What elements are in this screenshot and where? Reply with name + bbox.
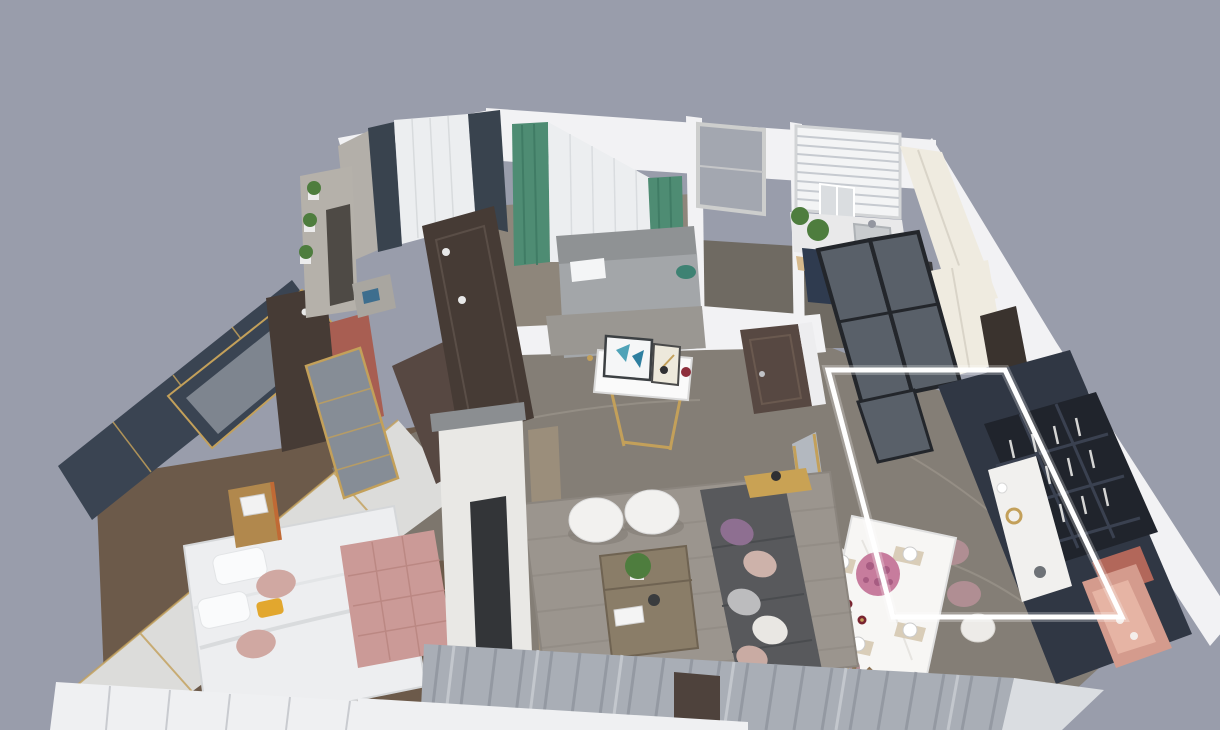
niche-item [1130, 632, 1138, 640]
bed2-pillow [570, 258, 606, 282]
plant [307, 181, 321, 195]
niche-white-vase [997, 483, 1007, 493]
wardrobe-knob [442, 248, 450, 256]
pouf-white-1 [569, 498, 623, 542]
sculpture-black [660, 366, 668, 374]
faucet [868, 220, 876, 228]
kitchen-plant-1 [791, 207, 809, 225]
coffee-table-book [614, 606, 644, 626]
kitchen-plant-2 [807, 219, 829, 241]
pouf-white-2 [625, 490, 679, 534]
table-sculpture [648, 594, 660, 606]
wardrobe-knob [458, 296, 466, 304]
nightstand-books [240, 494, 268, 516]
shelf-dark-panel [326, 204, 354, 306]
plant [303, 213, 317, 227]
green-drape-left [512, 122, 550, 266]
door-handle [759, 371, 765, 377]
niche-dark-vase [1034, 566, 1046, 578]
coffee-table-plant [625, 553, 651, 579]
bed2-teal-pillow [676, 265, 696, 279]
plate [903, 623, 917, 637]
bottle-cap-gold [860, 618, 864, 622]
sculpture-red [681, 367, 691, 377]
bathroom [698, 124, 764, 214]
chair-mauve [947, 581, 981, 607]
plant [299, 245, 313, 259]
artwork-1 [604, 336, 652, 380]
vase-gold [587, 355, 593, 361]
floorplan-svg [0, 0, 1220, 730]
floorplan-render [0, 0, 1220, 730]
console-lamp [771, 471, 781, 481]
plate [903, 547, 917, 561]
